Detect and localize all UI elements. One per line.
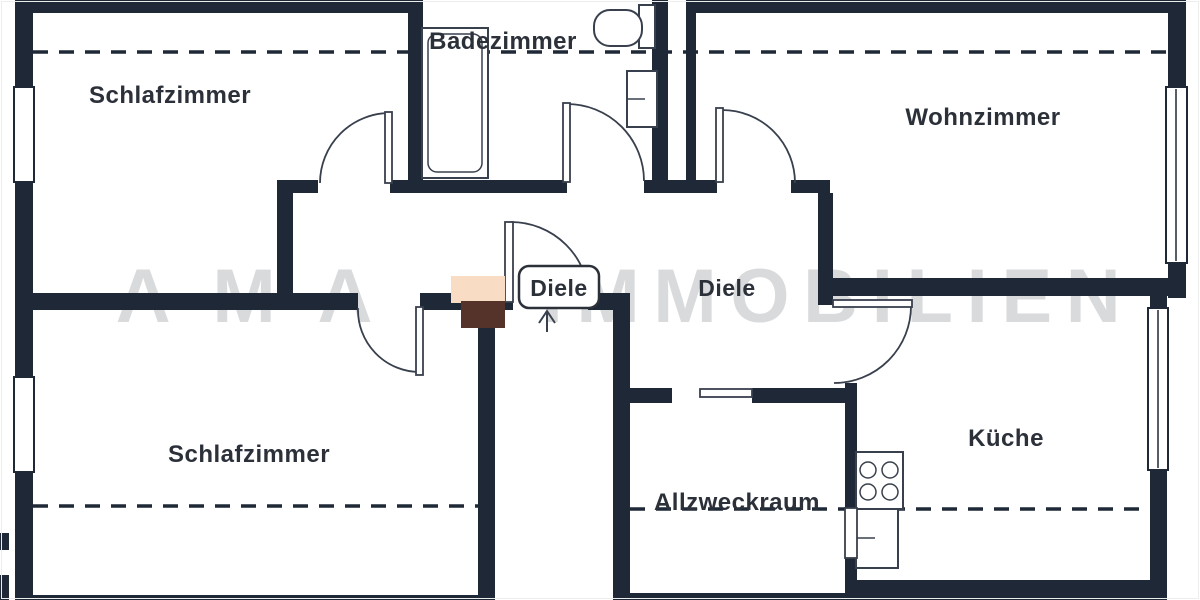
wall-segment bbox=[15, 472, 33, 600]
room-label-wohnzimmer: Wohnzimmer bbox=[905, 104, 1060, 131]
room-label-schlafzimmer-bottom: Schlafzimmer bbox=[168, 441, 330, 468]
door-leaf-bathroom bbox=[563, 103, 570, 182]
floorplan-image: AMA IMMOBILIEN bbox=[0, 0, 1200, 600]
door-arc-livingroom bbox=[722, 110, 795, 183]
wall-segment bbox=[15, 0, 33, 87]
wall-segment bbox=[686, 0, 696, 193]
door-leaf-livingroom bbox=[716, 108, 723, 182]
wall-segment bbox=[277, 180, 293, 310]
wall-segment bbox=[15, 310, 33, 377]
wall-segment bbox=[630, 593, 857, 600]
wall-segment bbox=[830, 278, 1168, 296]
room-label-diele-open: Diele bbox=[698, 275, 755, 301]
watermark-text-immobilien: IMMOBILIEN bbox=[542, 254, 1135, 339]
room-label-schlafzimmer-top: Schlafzimmer bbox=[89, 82, 251, 109]
toilet-bowl bbox=[594, 10, 642, 46]
window-bedroom-bottom bbox=[14, 377, 34, 472]
wall-segment bbox=[32, 0, 420, 13]
watermark-logo bbox=[451, 276, 505, 328]
wall-segment bbox=[15, 182, 33, 293]
logo-square-dark bbox=[461, 301, 505, 328]
room-label-badezimmer: Badezimmer bbox=[429, 28, 577, 55]
wall-segment bbox=[0, 575, 9, 600]
wall-segment bbox=[791, 180, 830, 193]
wall-segment bbox=[478, 310, 495, 600]
logo-square-light bbox=[451, 276, 505, 303]
glass-panel-allzweckraum bbox=[700, 389, 752, 397]
wall-segment bbox=[423, 180, 567, 193]
wall-segment bbox=[1150, 470, 1167, 585]
wall-segment bbox=[613, 293, 630, 600]
wall-segment bbox=[1168, 263, 1186, 298]
wall-segment bbox=[628, 388, 672, 403]
door-arc-bedroom-top bbox=[320, 113, 390, 183]
door-leaf-hallway bbox=[505, 222, 513, 302]
window-bedroom-top bbox=[14, 87, 34, 182]
room-label-kueche: Küche bbox=[968, 425, 1044, 452]
wall-segment bbox=[0, 533, 9, 550]
floorplan-svg: AMA IMMOBILIEN bbox=[0, 0, 1200, 600]
wall-opening-kitchen bbox=[845, 508, 857, 558]
wall-segment bbox=[695, 0, 1186, 13]
room-label-diele-boxed: Diele bbox=[530, 275, 587, 301]
wall-segment bbox=[818, 193, 833, 305]
wall-segment bbox=[408, 0, 423, 193]
wall-segment bbox=[752, 388, 857, 403]
wall-segment bbox=[15, 595, 478, 600]
door-leaf-bedroom-top bbox=[385, 112, 392, 183]
door-leaf-bedroom-bottom bbox=[416, 307, 423, 375]
door-leaf-kitchen bbox=[833, 300, 912, 307]
stove bbox=[856, 452, 903, 509]
wall-segment bbox=[15, 293, 358, 310]
wall-segment bbox=[845, 580, 1167, 600]
room-label-allzweckraum: Allzweckraum bbox=[654, 489, 820, 516]
wall-segment bbox=[1168, 0, 1186, 87]
